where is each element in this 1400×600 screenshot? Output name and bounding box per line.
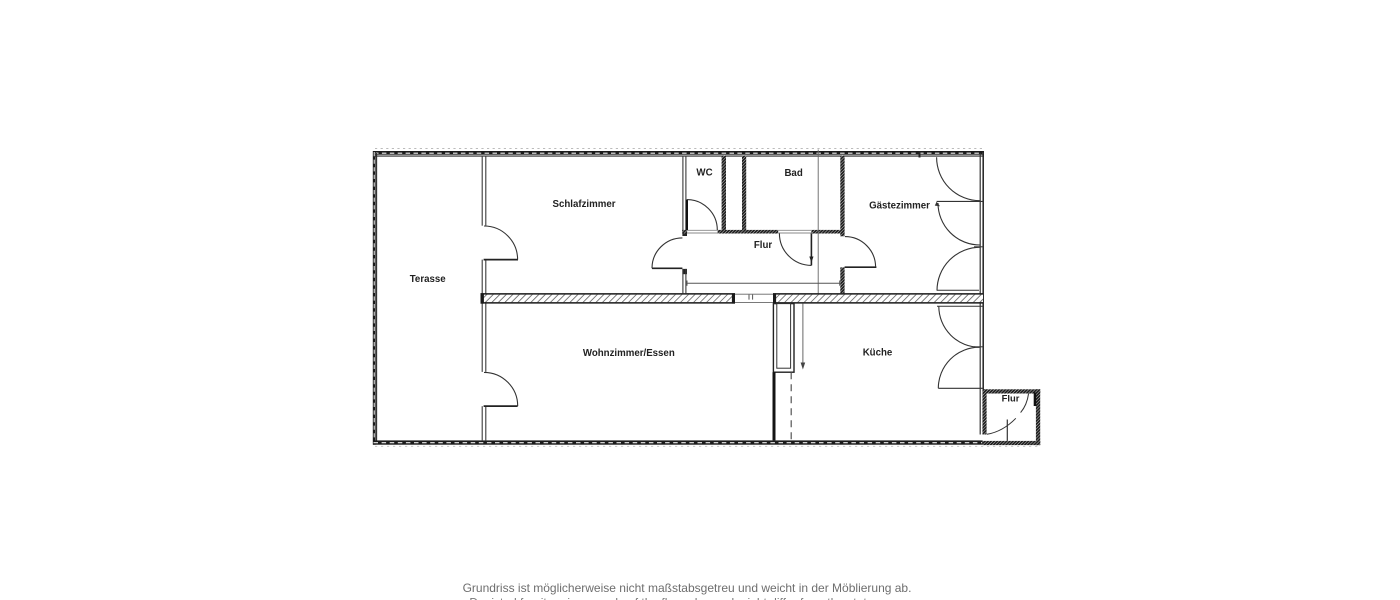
- svg-text:Flur: Flur: [754, 240, 773, 251]
- svg-text:Grundriss ist möglicherweise n: Grundriss ist möglicherweise nicht maßst…: [463, 581, 912, 595]
- svg-text:Schlafzimmer: Schlafzimmer: [553, 199, 616, 210]
- svg-text:Terasse: Terasse: [410, 274, 447, 285]
- svg-text:Gästezimmer: Gästezimmer: [869, 201, 930, 212]
- svg-text:Depicted furniture is example: Depicted furniture is example of the flo…: [469, 596, 876, 600]
- svg-text:Bad: Bad: [784, 168, 802, 179]
- svg-text:Flur: Flur: [1002, 393, 1020, 404]
- svg-text:Wohnzimmer/Essen: Wohnzimmer/Essen: [583, 348, 675, 359]
- svg-text:Küche: Küche: [863, 348, 893, 359]
- svg-text:WC: WC: [696, 167, 712, 178]
